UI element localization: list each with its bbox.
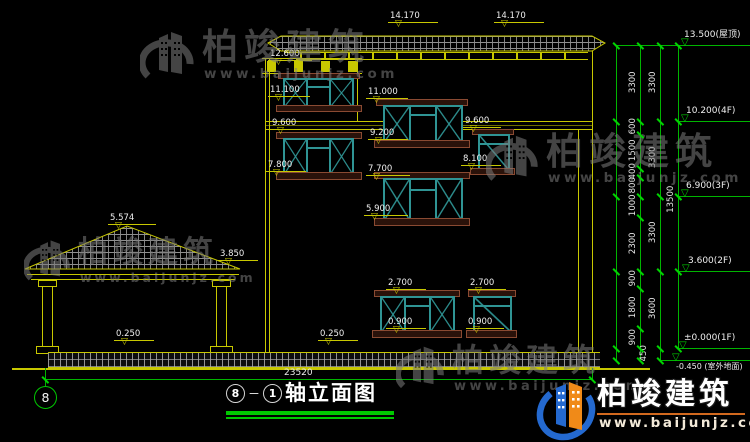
- title-underline-thin: [226, 417, 394, 419]
- ladder-line-ext: [616, 45, 617, 360]
- width-dim-ext-left: [45, 368, 46, 386]
- fine-dim: 3300: [629, 60, 638, 104]
- watermark-left: 柏竣建筑 www.baijunjz.com: [24, 232, 264, 288]
- baijun-watermark-icon: [140, 26, 196, 86]
- elevation-drawing-canvas: 23520 8 14.170▽ 14.170▽ 12.600▽ 11.100▽ …: [0, 0, 750, 442]
- title-axis-end: 1: [263, 384, 282, 403]
- porch-column-right: [216, 286, 227, 348]
- width-dim-value: 23520: [284, 369, 313, 378]
- wall-right-outer: [592, 51, 593, 368]
- level-label-1f: ±0.000(1F): [684, 334, 735, 343]
- level-label-2f: 3.600(2F): [688, 257, 732, 266]
- ladder-line-fine: [640, 45, 641, 360]
- title-text: 轴立面图: [285, 383, 377, 404]
- wall-left-inner: [269, 58, 270, 368]
- brand-name: 柏竣建筑: [597, 380, 733, 410]
- level-label-4f: 10.200(4F): [686, 107, 735, 116]
- baijun-watermark-icon: [396, 340, 446, 396]
- baijun-logo-icon: [536, 375, 598, 441]
- brand-url: www.baijunjz.com: [599, 417, 750, 431]
- title-axis-start: 8: [226, 384, 245, 403]
- baijun-watermark-icon: [486, 130, 540, 188]
- watermark-right: 柏竣建筑 www.baijunjz.com: [486, 128, 750, 188]
- watermark-top: 柏竣建筑 www.baijunjz.com: [140, 24, 400, 84]
- floor-dim: 3600: [649, 286, 658, 330]
- baijun-watermark-icon: [24, 234, 72, 288]
- floor-dim: 3300: [649, 60, 658, 104]
- fine-dim: 450: [640, 331, 649, 375]
- title-underline-thick: [226, 411, 394, 415]
- title-dash: －: [248, 385, 260, 402]
- level-line-1f: [678, 348, 750, 349]
- wall-left-outer: [265, 58, 266, 368]
- porch-column-left: [42, 286, 53, 348]
- level-label-roof: 13.500(屋顶): [684, 31, 741, 40]
- floor-dim: 3300: [649, 210, 658, 254]
- axis-bubble-8: 8: [34, 386, 57, 409]
- axis-bubble-label: 8: [42, 390, 50, 405]
- level-label-ground: -0.450 (室外地面): [676, 363, 743, 371]
- ladder-line-floors: [660, 45, 661, 360]
- drawing-title: 8 － 1 轴立面图: [226, 383, 377, 404]
